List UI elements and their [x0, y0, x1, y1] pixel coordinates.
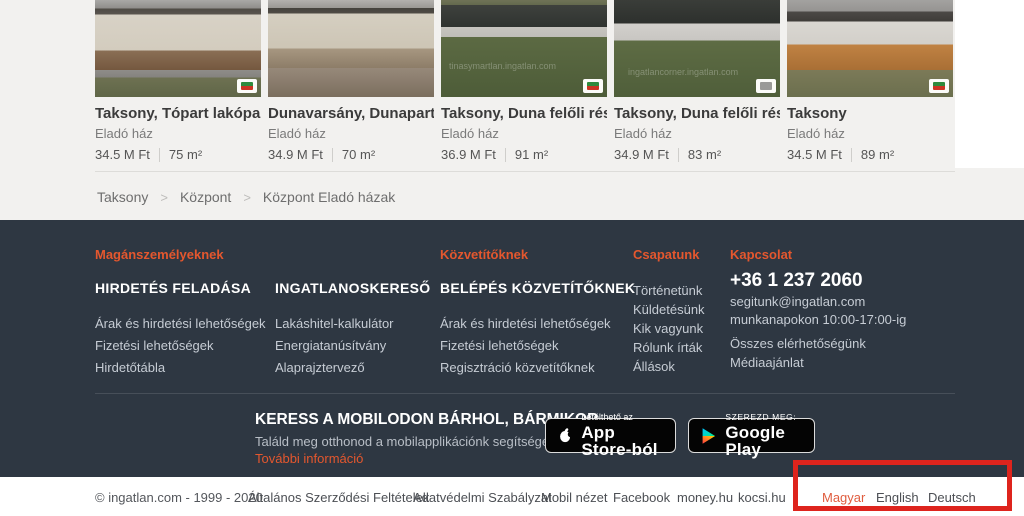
price-area-divider	[505, 148, 506, 162]
footer-header-team: Csapatunk	[633, 247, 699, 262]
mobile-view-link[interactable]: Mobil nézet	[541, 490, 607, 505]
property-category: Eladó ház	[95, 126, 261, 141]
chevron-right-icon: >	[160, 190, 168, 205]
footer-link[interactable]: Küldetésünk	[633, 300, 705, 319]
property-meta: 34.9 M Ft 83 m²	[614, 147, 780, 162]
copyright-text: © ingatlan.com - 1999 - 2020	[95, 490, 263, 505]
footer-links-ingatlanoskereso: Lakáshitel-kalkulátor Energiatanúsítvány…	[275, 313, 394, 379]
property-card[interactable]: Taksony Eladó ház 34.5 M Ft 89 m²	[787, 0, 953, 162]
chevron-right-icon: >	[243, 190, 251, 205]
footer-link[interactable]: Fizetési lehetőségek	[95, 335, 266, 357]
property-card[interactable]: Taksony, Tópart lakópark... Eladó ház 34…	[95, 0, 261, 162]
property-area: 70 m²	[342, 147, 375, 162]
agency-logo-badge-icon	[583, 79, 603, 93]
property-category: Eladó ház	[441, 126, 607, 141]
kocsihu-link[interactable]: kocsi.hu	[738, 490, 786, 505]
footer-link[interactable]: Fizetési lehetőségek	[440, 335, 611, 357]
privacy-link[interactable]: Adatvédelmi Szabályzat	[413, 490, 552, 505]
footer-heading-belepes: BELÉPÉS KÖZVETÍTŐKNEK	[440, 280, 635, 296]
property-category: Eladó ház	[614, 126, 780, 141]
property-meta: 34.5 M Ft 89 m²	[787, 147, 953, 162]
contact-hours: munkanapokon 10:00-17:00-ig	[730, 312, 906, 327]
property-meta: 34.9 M Ft 70 m²	[268, 147, 434, 162]
property-photo: ingatlancorner.ingatlan.com	[614, 0, 780, 97]
property-card[interactable]: ingatlancorner.ingatlan.com Taksony, Dun…	[614, 0, 780, 162]
footer-link[interactable]: Árak és hirdetési lehetőségek	[440, 313, 611, 335]
listings-section: Taksony, Tópart lakópark... Eladó ház 34…	[0, 0, 1024, 220]
property-meta: 36.9 M Ft 91 m²	[441, 147, 607, 162]
listing-cards-row: Taksony, Tópart lakópark... Eladó ház 34…	[95, 0, 953, 162]
property-area: 89 m²	[861, 147, 894, 162]
footer-link[interactable]: Lakáshitel-kalkulátor	[275, 313, 394, 335]
property-photo: tinasymartlan.ingatlan.com	[441, 0, 607, 97]
photo-watermark: ingatlancorner.ingatlan.com	[628, 67, 738, 77]
footer-link[interactable]: Állások	[633, 357, 705, 376]
property-card[interactable]: tinasymartlan.ingatlan.com Taksony, Duna…	[441, 0, 607, 162]
property-area: 75 m²	[169, 147, 202, 162]
facebook-link[interactable]: Facebook	[613, 490, 670, 505]
footer-link[interactable]: Hirdetőtábla	[95, 357, 266, 379]
footer-header-agents: Közvetítőknek	[440, 247, 528, 262]
property-title: Taksony, Duna felőli rész...	[441, 105, 607, 122]
footer-heading-ingatlanoskereso: INGATLANOSKERESŐ	[275, 280, 430, 296]
agency-logo-badge-icon	[237, 79, 257, 93]
breadcrumb: Taksony > Központ > Központ Eladó házak	[97, 189, 395, 205]
property-price: 36.9 M Ft	[441, 147, 496, 162]
section-divider	[95, 171, 955, 172]
app-store-badge-text: Letölthető az App Store-ból	[581, 413, 662, 458]
property-price: 34.5 M Ft	[95, 147, 150, 162]
google-play-badge-text: SZEREZD MEG: Google Play	[725, 413, 801, 458]
price-area-divider	[678, 148, 679, 162]
property-price: 34.9 M Ft	[614, 147, 669, 162]
mobile-promo-subtitle: Találd meg otthonod a mobilapplikációnk …	[255, 434, 569, 449]
footer-links-contact: Összes elérhetőségünk Médiaajánlat	[730, 334, 866, 372]
property-photo	[95, 0, 261, 97]
breadcrumb-item-kozpont[interactable]: Központ	[180, 189, 231, 205]
property-category: Eladó ház	[787, 126, 953, 141]
apple-icon	[559, 424, 572, 447]
footer-divider	[95, 393, 955, 394]
footer-link[interactable]: Összes elérhetőségünk	[730, 334, 866, 353]
moneyhu-link[interactable]: money.hu	[677, 490, 733, 505]
property-card[interactable]: Dunavarsány, Dunapart, ... Eladó ház 34.…	[268, 0, 434, 162]
footer-link[interactable]: Történetünk	[633, 281, 705, 300]
footer-link[interactable]: Médiaajánlat	[730, 353, 866, 372]
breadcrumb-item-taksony[interactable]: Taksony	[97, 189, 148, 205]
property-photo	[787, 0, 953, 97]
property-photo	[268, 0, 434, 97]
property-meta: 34.5 M Ft 75 m²	[95, 147, 261, 162]
footer-link[interactable]: Energiatanúsítvány	[275, 335, 394, 357]
property-price: 34.9 M Ft	[268, 147, 323, 162]
property-price: 34.5 M Ft	[787, 147, 842, 162]
footer-link[interactable]: Árak és hirdetési lehetőségek	[95, 313, 266, 335]
footer-links-team: Történetünk Küldetésünk Kik vagyunk Rólu…	[633, 281, 705, 376]
mobile-more-info-link[interactable]: További információ	[255, 451, 363, 466]
terms-link[interactable]: Általános Szerződési Feltételek	[248, 490, 429, 505]
breadcrumb-item-current: Központ Eladó házak	[263, 189, 395, 205]
property-category: Eladó ház	[268, 126, 434, 141]
contact-phone[interactable]: +36 1 237 2060	[730, 270, 863, 292]
property-title: Taksony, Tópart lakópark...	[95, 105, 261, 122]
app-store-badge[interactable]: Letölthető az App Store-ból	[545, 418, 676, 453]
footer-link[interactable]: Kik vagyunk	[633, 319, 705, 338]
price-area-divider	[159, 148, 160, 162]
agency-logo-badge-icon	[756, 79, 776, 93]
carousel-overflow-area	[955, 0, 1024, 168]
footer-link[interactable]: Rólunk írták	[633, 338, 705, 357]
footer-link[interactable]: Regisztráció közvetítőknek	[440, 357, 611, 379]
annotation-highlight-box	[793, 460, 1012, 511]
property-title: Dunavarsány, Dunapart, ...	[268, 105, 434, 122]
footer-heading-hirdetes: HIRDETÉS FELADÁSA	[95, 280, 251, 296]
agency-logo-badge-icon	[929, 79, 949, 93]
price-area-divider	[851, 148, 852, 162]
price-area-divider	[332, 148, 333, 162]
property-area: 91 m²	[515, 147, 548, 162]
contact-email[interactable]: segitunk@ingatlan.com	[730, 294, 865, 309]
footer-header-contact: Kapcsolat	[730, 247, 792, 262]
google-play-badge[interactable]: SZEREZD MEG: Google Play	[688, 418, 815, 453]
footer-link[interactable]: Alaprajztervező	[275, 357, 394, 379]
footer-links-hirdetes: Árak és hirdetési lehetőségek Fizetési l…	[95, 313, 266, 379]
footer-header-private: Magánszemélyeknek	[95, 247, 224, 262]
google-play-icon	[702, 425, 716, 447]
property-area: 83 m²	[688, 147, 721, 162]
property-title: Taksony, Duna felőli rész...	[614, 105, 780, 122]
photo-watermark: tinasymartlan.ingatlan.com	[449, 61, 556, 71]
footer-links-agents: Árak és hirdetési lehetőségek Fizetési l…	[440, 313, 611, 379]
footer: Magánszemélyeknek Közvetítőknek Csapatun…	[0, 220, 1024, 477]
property-title: Taksony	[787, 105, 953, 122]
